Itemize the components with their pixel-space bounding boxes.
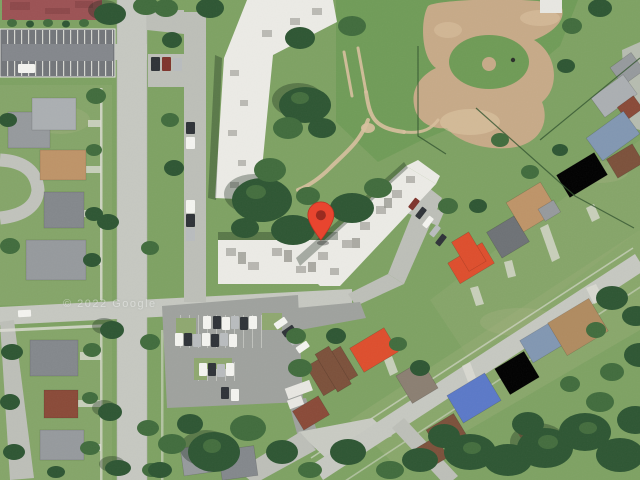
satellite-map-canvas[interactable]: © 2022 Google <box>0 0 640 480</box>
imagery-grain-texture <box>0 0 640 480</box>
marker-pin-hole <box>316 210 326 220</box>
map-imagery <box>0 0 640 480</box>
marker-shadow <box>317 241 329 246</box>
